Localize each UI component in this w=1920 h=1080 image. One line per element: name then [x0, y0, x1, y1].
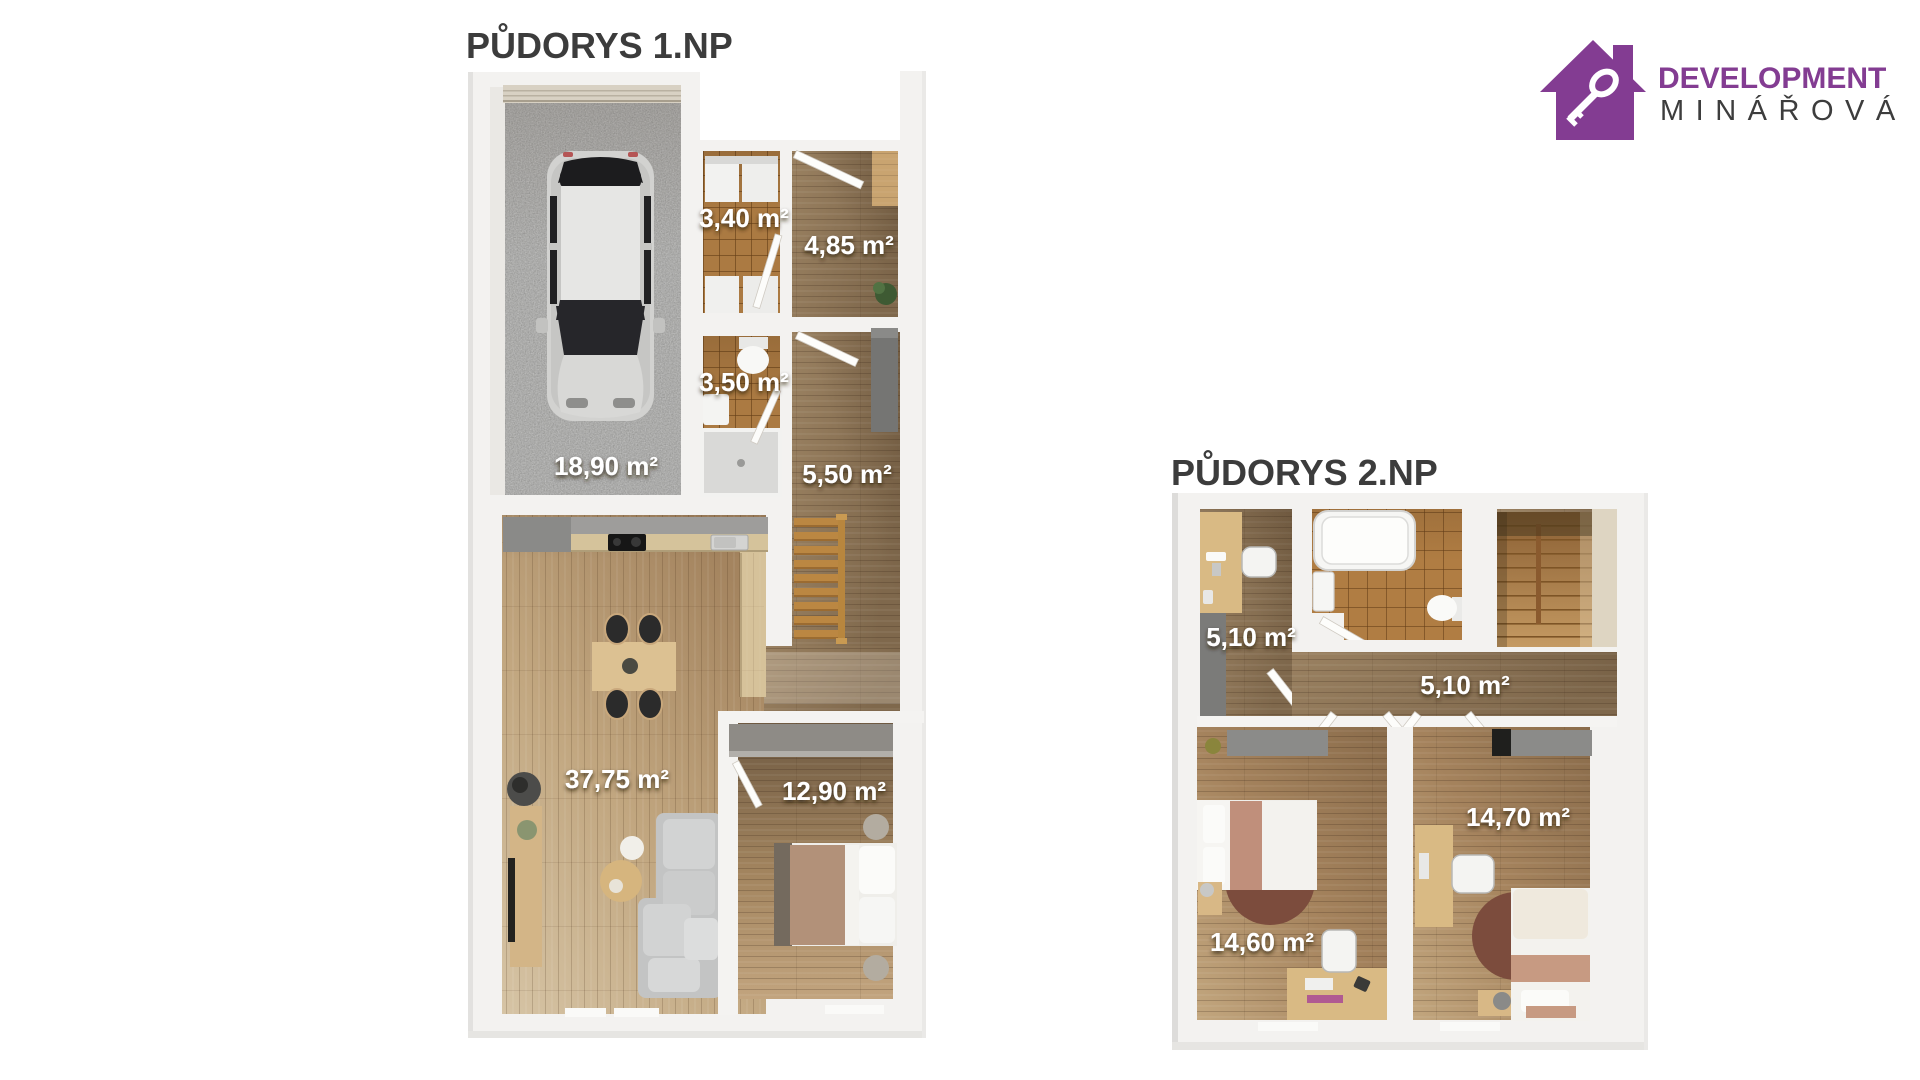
svg-text:5,10 m²: 5,10 m² [1206, 622, 1296, 652]
svg-text:DEVELOPMENT: DEVELOPMENT [1658, 62, 1886, 95]
svg-text:14,60 m²: 14,60 m² [1210, 927, 1314, 957]
svg-text:18,90 m²: 18,90 m² [554, 451, 658, 481]
svg-text:4,85 m²: 4,85 m² [804, 230, 894, 260]
svg-text:12,90 m²: 12,90 m² [782, 776, 886, 806]
svg-text:PŮDORYS 1.NP: PŮDORYS 1.NP [466, 21, 733, 66]
svg-text:MINÁŘOVÁ: MINÁŘOVÁ [1660, 94, 1907, 127]
svg-text:5,50 m²: 5,50 m² [802, 459, 892, 489]
svg-text:5,10 m²: 5,10 m² [1420, 670, 1510, 700]
svg-text:3,40 m²: 3,40 m² [699, 203, 789, 233]
svg-text:3,50 m²: 3,50 m² [699, 367, 789, 397]
svg-text:37,75 m²: 37,75 m² [565, 764, 669, 794]
svg-text:PŮDORYS 2.NP: PŮDORYS 2.NP [1171, 448, 1438, 493]
svg-text:14,70 m²: 14,70 m² [1466, 802, 1570, 832]
